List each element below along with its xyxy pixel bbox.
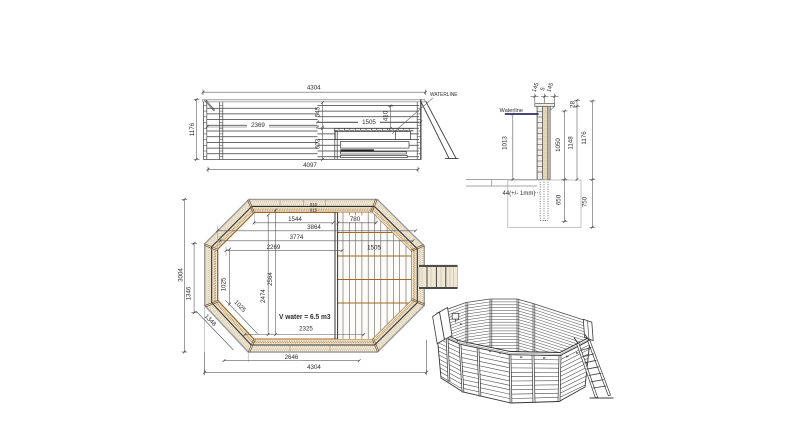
- svg-text:1050: 1050: [555, 138, 562, 152]
- svg-text:2369: 2369: [251, 122, 265, 129]
- svg-text:2325: 2325: [299, 325, 313, 332]
- svg-text:2474: 2474: [260, 289, 267, 303]
- svg-text:2646: 2646: [285, 354, 299, 361]
- svg-text:1176: 1176: [189, 122, 196, 136]
- svg-text:44(+/- 1mm): 44(+/- 1mm): [503, 191, 536, 197]
- svg-text:4097: 4097: [303, 162, 317, 169]
- svg-text:3864: 3864: [307, 224, 321, 231]
- svg-text:V water = 6.5 m3: V water = 6.5 m3: [279, 314, 331, 321]
- svg-text:4304: 4304: [307, 364, 321, 371]
- svg-text:1505: 1505: [362, 119, 376, 126]
- svg-text:28: 28: [570, 101, 577, 108]
- svg-text:2269: 2269: [267, 244, 281, 251]
- svg-text:1013: 1013: [502, 136, 509, 150]
- svg-text:1025: 1025: [221, 277, 228, 291]
- svg-text:3004: 3004: [177, 268, 184, 282]
- svg-text:1176: 1176: [581, 131, 588, 145]
- svg-text:4304: 4304: [307, 85, 321, 92]
- svg-text:650: 650: [556, 194, 563, 205]
- svg-text:1505: 1505: [367, 245, 381, 252]
- svg-text:910: 910: [310, 202, 318, 207]
- svg-text:1544: 1544: [288, 216, 302, 223]
- svg-text:3774: 3774: [290, 234, 304, 241]
- svg-text:545: 545: [315, 106, 322, 117]
- svg-text:750: 750: [582, 196, 589, 207]
- svg-text:780: 780: [350, 216, 361, 223]
- svg-text:410: 410: [383, 110, 390, 121]
- svg-text:603: 603: [315, 138, 322, 149]
- svg-text:WATERLINE: WATERLINE: [430, 92, 458, 98]
- svg-text:1148: 1148: [568, 136, 575, 150]
- svg-text:915: 915: [310, 208, 318, 213]
- svg-text:Waterline: Waterline: [500, 108, 523, 114]
- svg-text:1346: 1346: [186, 286, 193, 300]
